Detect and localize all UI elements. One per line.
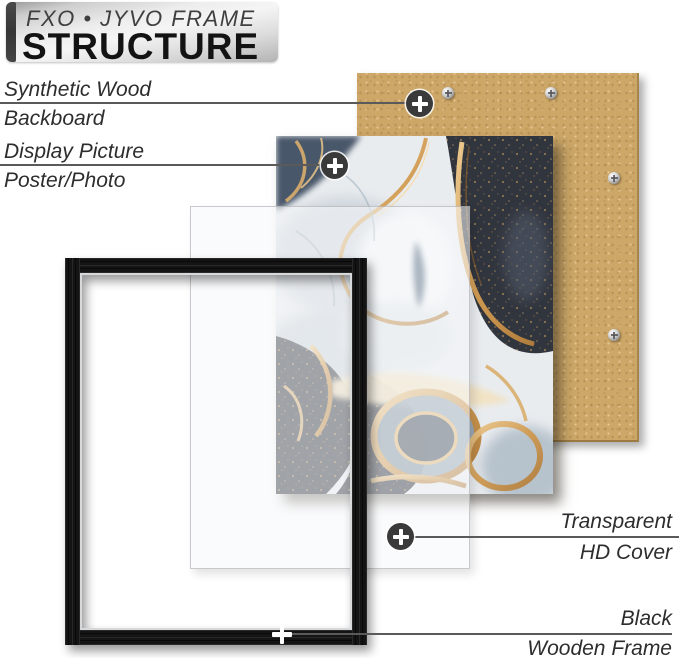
screw-icon <box>442 87 454 99</box>
plus-marker-frame-icon <box>270 622 294 646</box>
leader-line-cover <box>400 536 679 538</box>
frame-opening <box>80 273 352 630</box>
label-cover-line2: HD Cover <box>580 540 672 565</box>
label-backboard-line1: Synthetic Wood <box>4 77 151 102</box>
page-title: STRUCTURE <box>22 26 259 68</box>
wooden-frame-layer <box>65 258 367 645</box>
label-poster-line2: Poster/Photo <box>4 168 125 193</box>
leader-line-frame <box>282 633 672 635</box>
label-poster-line1: Display Picture <box>4 139 144 164</box>
frame-bar-left <box>65 258 80 645</box>
screw-icon <box>608 172 620 184</box>
leader-line-backboard <box>0 102 419 104</box>
screw-icon <box>545 87 557 99</box>
plus-marker-poster-icon <box>321 152 348 179</box>
frame-bar-top <box>65 258 367 273</box>
leader-line-poster <box>0 164 334 166</box>
label-cover-line1: Transparent <box>560 509 672 534</box>
screw-icon <box>608 329 620 341</box>
header-badge: FXO • JYVO FRAME STRUCTURE <box>6 2 278 62</box>
header-accent-bar <box>6 2 16 62</box>
label-frame-line1: Black <box>621 606 672 631</box>
plus-marker-cover-icon <box>387 523 414 550</box>
label-backboard-line2: Backboard <box>4 106 104 131</box>
label-frame-line2: Wooden Frame <box>527 636 672 658</box>
plus-marker-backboard-icon <box>406 90 433 117</box>
frame-structure-diagram: FXO • JYVO FRAME STRUCTURE <box>0 0 679 658</box>
frame-bar-right <box>352 258 367 645</box>
